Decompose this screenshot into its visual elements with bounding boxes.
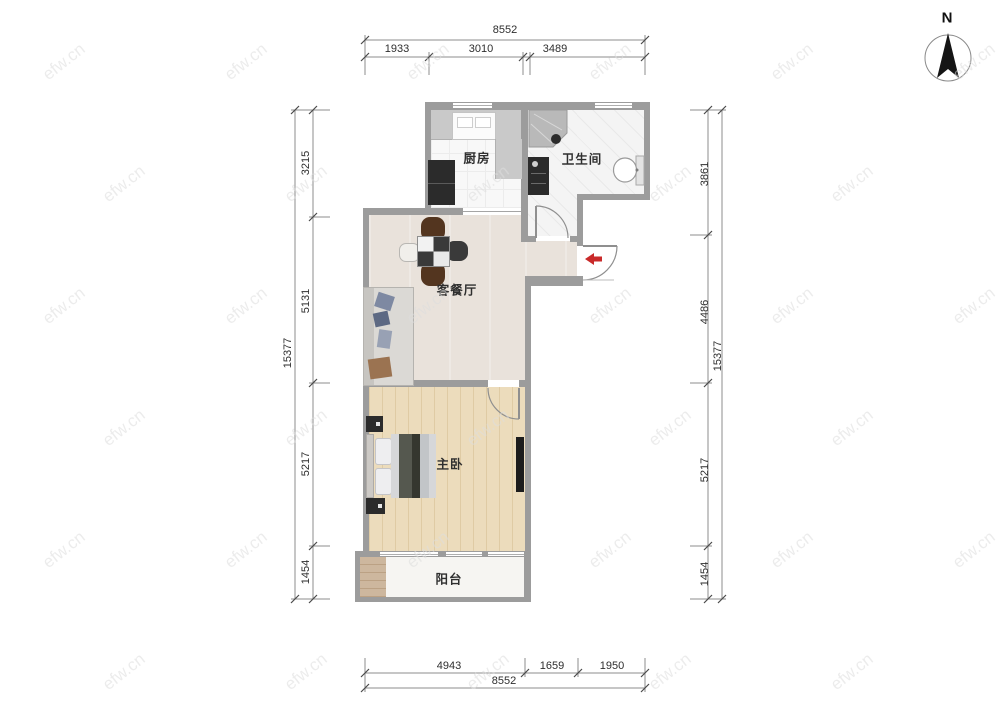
living-dining-label: 客餐厅 <box>437 280 478 299</box>
balcony-label: 阳台 <box>435 569 462 588</box>
watermark-text: efw.cn <box>39 39 89 84</box>
dim-left-total: 15377 <box>282 338 294 369</box>
sink-basin <box>457 117 473 128</box>
watermark-text: efw.cn <box>767 39 817 84</box>
watermark-text: efw.cn <box>949 283 999 328</box>
balcony-window-3 <box>488 552 528 556</box>
bathroom-window <box>595 103 632 108</box>
watermark-text: efw.cn <box>949 527 999 572</box>
bed-headboard <box>366 434 374 498</box>
dim-bottom-seg2: 1659 <box>540 660 564 672</box>
entry-corridor-floor <box>525 241 577 276</box>
watermark-text: efw.cn <box>585 39 635 84</box>
master-bedroom-label: 主卧 <box>436 454 463 473</box>
bed-pillow <box>375 468 392 495</box>
bed-pillow <box>375 438 392 465</box>
bathroom-door-wall-right <box>570 236 583 242</box>
balcony-window-1 <box>380 552 438 556</box>
kitchen-label: 厨房 <box>463 148 490 167</box>
dim-right-seg2: 4486 <box>699 300 711 324</box>
dim-bottom-seg3: 1950 <box>600 660 624 672</box>
dim-right-seg3: 5217 <box>699 458 711 482</box>
dim-right-total: 15377 <box>712 341 724 372</box>
compass-icon <box>925 33 971 81</box>
dim-left-seg1: 3215 <box>300 151 312 175</box>
watermark-text: efw.cn <box>949 39 999 84</box>
watermark-text: efw.cn <box>403 39 453 84</box>
watermark-text: efw.cn <box>221 39 271 84</box>
dim-left-seg4: 1454 <box>300 560 312 584</box>
watermark-text: efw.cn <box>281 405 331 450</box>
watermark-text: efw.cn <box>99 405 149 450</box>
refrigerator <box>428 160 455 205</box>
sofa <box>363 287 414 386</box>
kitchen-sliding-door <box>463 208 521 215</box>
bed-fold <box>420 434 429 498</box>
watermark-text: efw.cn <box>39 527 89 572</box>
kitchen-bathroom-divider-wall <box>521 102 528 242</box>
watermark-text: efw.cn <box>39 283 89 328</box>
dim-left-seg3: 5217 <box>300 452 312 476</box>
balcony-left-wall <box>355 551 360 602</box>
bed <box>366 434 436 498</box>
kitchen-sink <box>452 112 496 140</box>
compass-north-label: N <box>942 10 953 27</box>
watermark-text: efw.cn <box>645 405 695 450</box>
nightstand-bottom <box>366 498 385 514</box>
watermark-text: efw.cn <box>99 161 149 206</box>
dim-top-seg3: 3489 <box>543 43 567 55</box>
dim-top-seg2: 3010 <box>469 43 493 55</box>
kitchen-counter-side <box>495 139 522 179</box>
dim-top-seg1: 1933 <box>385 43 409 55</box>
nightstand-top <box>366 416 383 432</box>
dim-left-seg2: 5131 <box>300 289 312 313</box>
dim-bottom-total: 8552 <box>492 675 516 687</box>
entry-door <box>583 246 617 280</box>
bathroom-right-wall <box>644 102 650 200</box>
corridor-bottom-wall <box>525 276 583 286</box>
watermark-text: efw.cn <box>221 283 271 328</box>
balcony-wood-strip <box>360 557 386 597</box>
bedroom-top-wall-right <box>519 380 531 387</box>
floor-plan-canvas: 厨房 卫生间 客餐厅 主卧 阳台 N 8552 1933 3010 3489 4… <box>0 0 1000 709</box>
living-top-wall <box>363 208 463 215</box>
watermark-text: efw.cn <box>221 527 271 572</box>
kitchen-window <box>453 103 492 108</box>
dim-right-seg4: 1454 <box>699 562 711 586</box>
balcony-window-2 <box>446 552 482 556</box>
watermark-text: efw.cn <box>281 649 331 694</box>
watermark-text: efw.cn <box>463 649 513 694</box>
bathroom-label: 卫生间 <box>562 149 603 168</box>
dim-top-total: 8552 <box>493 24 517 36</box>
tv-panel <box>516 437 524 492</box>
watermark-text: efw.cn <box>827 405 877 450</box>
watermark-text: efw.cn <box>585 283 635 328</box>
watermark-text: efw.cn <box>645 161 695 206</box>
bed-blanket-stripe <box>412 434 420 498</box>
watermark-text: efw.cn <box>99 649 149 694</box>
balcony-right-wall <box>524 551 531 602</box>
sofa-throw <box>368 357 393 380</box>
bathroom-bottom-right-wall <box>583 194 650 200</box>
watermark-text: efw.cn <box>645 649 695 694</box>
watermark-text: efw.cn <box>585 527 635 572</box>
bathroom-door-wall-left <box>521 236 536 242</box>
washing-machine <box>528 157 549 195</box>
entrance-arrow-icon <box>585 253 602 265</box>
watermark-text: efw.cn <box>767 283 817 328</box>
watermark-text: efw.cn <box>827 649 877 694</box>
balcony-bottom-wall <box>355 597 531 602</box>
watermark-text: efw.cn <box>827 161 877 206</box>
dining-table <box>417 236 450 267</box>
sofa-pillow <box>374 292 395 312</box>
dim-right-seg1: 3861 <box>699 162 711 186</box>
sofa-pillow <box>377 329 392 349</box>
sofa-pillow <box>373 311 391 328</box>
dim-bottom-seg1: 4943 <box>437 660 461 672</box>
sink-basin <box>475 117 491 128</box>
right-interior-wall <box>525 276 531 553</box>
watermark-text: efw.cn <box>767 527 817 572</box>
